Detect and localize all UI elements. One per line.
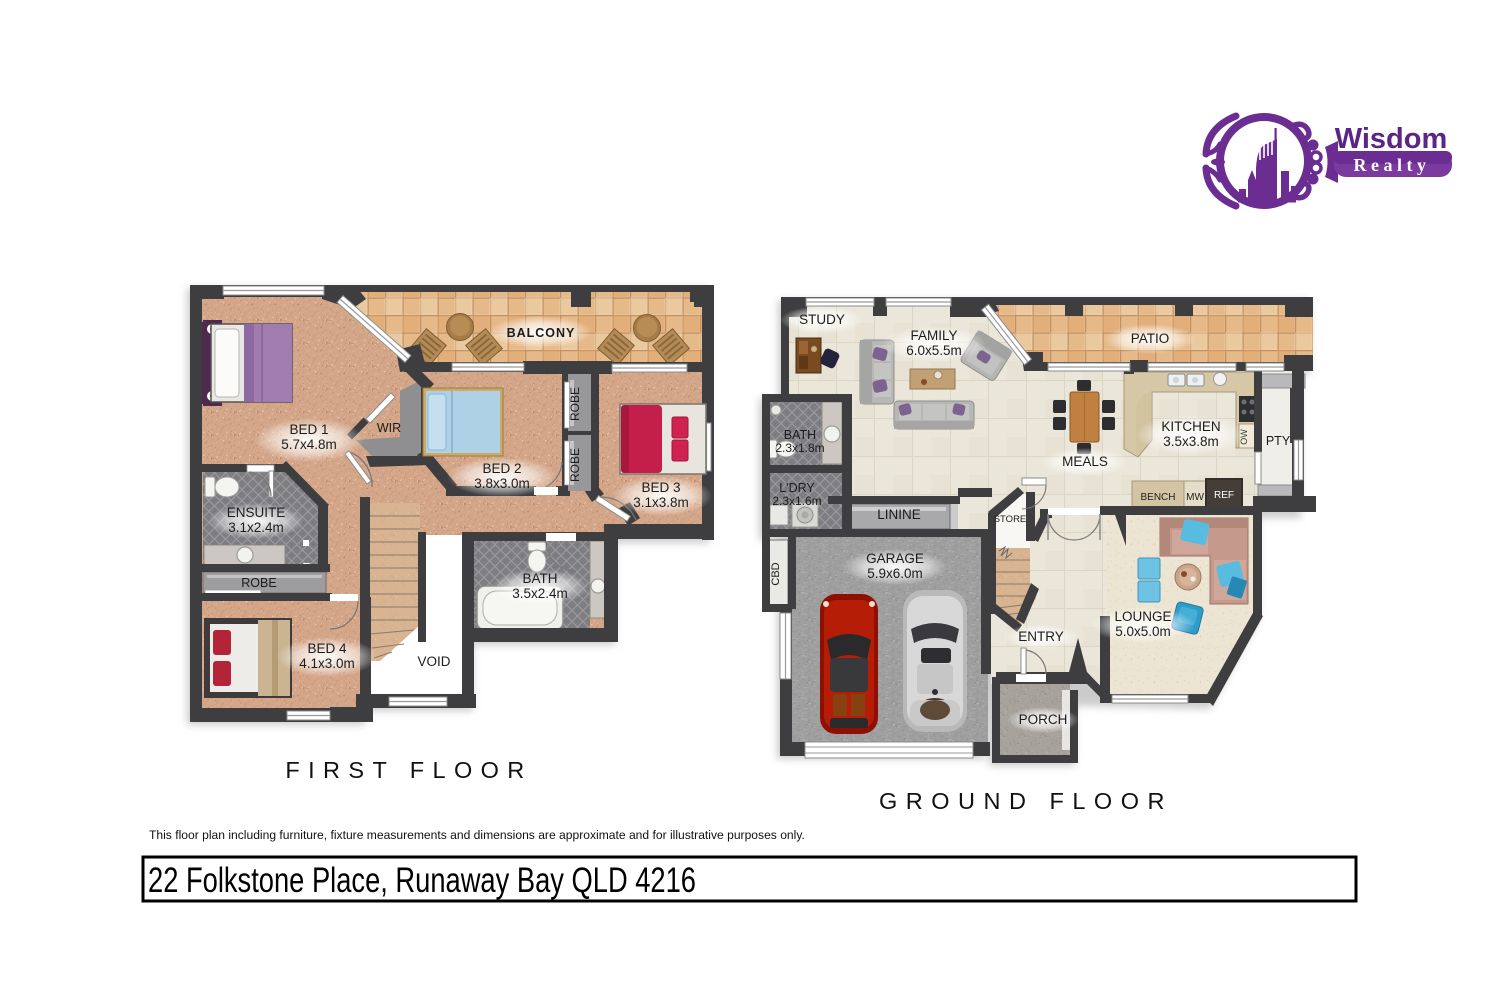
svg-text:GROUND FLOOR: GROUND FLOOR (879, 788, 1173, 814)
svg-text:ENSUITE: ENSUITE (227, 505, 286, 520)
svg-text:4.1x3.0m: 4.1x3.0m (299, 656, 355, 671)
svg-text:Wisdom: Wisdom (1335, 123, 1448, 155)
svg-text:ENTRY: ENTRY (1018, 629, 1064, 644)
svg-text:GARAGE: GARAGE (866, 551, 924, 566)
svg-text:PORCH: PORCH (1019, 712, 1068, 727)
svg-text:22 Folkstone Place, Runaway Ba: 22 Folkstone Place, Runaway Bay QLD 4216 (148, 861, 696, 900)
svg-text:BATH: BATH (522, 571, 557, 586)
svg-text:FAMILY: FAMILY (910, 328, 957, 343)
svg-text:STORE: STORE (994, 514, 1027, 525)
svg-text:5.9x6.0m: 5.9x6.0m (867, 566, 923, 581)
svg-text:BATH: BATH (784, 428, 816, 442)
svg-text:3.1x2.4m: 3.1x2.4m (228, 520, 284, 535)
svg-text:FIRST FLOOR: FIRST FLOOR (285, 757, 532, 783)
svg-text:BALCONY: BALCONY (507, 326, 576, 340)
svg-text:BED 3: BED 3 (641, 480, 680, 495)
svg-text:BED 4: BED 4 (307, 641, 347, 656)
svg-text:This floor plan including furn: This floor plan including furniture, fix… (149, 828, 805, 842)
svg-text:2.3x1.8m: 2.3x1.8m (775, 441, 824, 455)
svg-text:BENCH: BENCH (1140, 492, 1175, 503)
svg-text:STUDY: STUDY (799, 312, 845, 327)
svg-text:5.0x5.0m: 5.0x5.0m (1115, 624, 1171, 639)
svg-text:2.3x1.6m: 2.3x1.6m (772, 494, 821, 508)
svg-text:VOID: VOID (417, 654, 450, 669)
svg-text:ROBE: ROBE (241, 576, 276, 590)
svg-text:3.5x2.4m: 3.5x2.4m (512, 586, 568, 601)
svg-text:3.8x3.0m: 3.8x3.0m (474, 476, 530, 491)
svg-text:LOUNGE: LOUNGE (1114, 609, 1171, 624)
svg-text:L'DRY: L'DRY (779, 481, 815, 495)
svg-text:3.5x3.8m: 3.5x3.8m (1163, 434, 1219, 449)
svg-text:LININE: LININE (877, 507, 921, 522)
svg-text:PTY: PTY (1266, 434, 1291, 448)
svg-text:KITCHEN: KITCHEN (1161, 419, 1220, 434)
svg-text:BED 1: BED 1 (289, 422, 328, 437)
svg-text:Realty: Realty (1354, 155, 1431, 175)
svg-text:PATIO: PATIO (1131, 331, 1170, 346)
svg-text:REF: REF (1214, 490, 1234, 501)
svg-text:6.0x5.5m: 6.0x5.5m (906, 343, 962, 358)
svg-text:MEALS: MEALS (1062, 454, 1108, 469)
svg-text:WIR: WIR (377, 421, 401, 435)
svg-text:3.1x3.8m: 3.1x3.8m (633, 495, 689, 510)
svg-text:CBD: CBD (770, 562, 782, 585)
svg-text:5.7x4.8m: 5.7x4.8m (281, 437, 337, 452)
svg-text:BED 2: BED 2 (482, 461, 521, 476)
svg-text:ROBE: ROBE (568, 448, 582, 482)
svg-text:MW: MW (1186, 492, 1204, 503)
svg-text:ROBE: ROBE (568, 387, 582, 421)
